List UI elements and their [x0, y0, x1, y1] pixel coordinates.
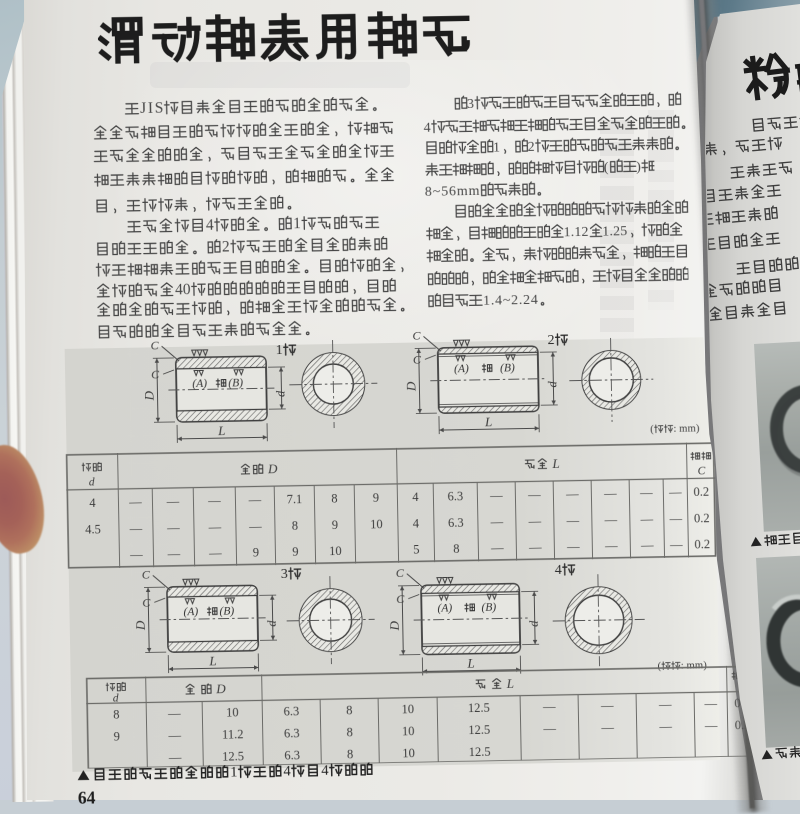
- svg-text:1.12: 1.12: [563, 224, 588, 239]
- svg-text:—: —: [489, 489, 503, 503]
- svg-text:D: D: [141, 390, 156, 401]
- svg-text:0.2: 0.2: [693, 485, 709, 499]
- svg-text:—: —: [639, 486, 653, 500]
- svg-text:9: 9: [332, 518, 339, 532]
- svg-text:d: d: [89, 477, 95, 489]
- svg-text:—: —: [565, 487, 579, 501]
- svg-text:—: —: [658, 719, 672, 733]
- svg-text:JIS: JIS: [140, 100, 164, 117]
- svg-text:L: L: [484, 414, 493, 429]
- svg-text:10: 10: [370, 517, 383, 531]
- svg-text:40: 40: [175, 281, 191, 298]
- svg-text:8: 8: [346, 703, 353, 717]
- svg-text:9: 9: [292, 545, 299, 559]
- svg-text:C: C: [412, 328, 421, 342]
- svg-text:—: —: [248, 519, 262, 533]
- svg-text:6.3: 6.3: [448, 516, 464, 530]
- svg-text:L: L: [551, 456, 560, 471]
- svg-text:—: —: [668, 512, 682, 526]
- svg-text:—: —: [167, 706, 181, 720]
- svg-text:4.5: 4.5: [85, 522, 101, 536]
- svg-text:0.2: 0.2: [694, 537, 710, 551]
- svg-text:4: 4: [424, 120, 431, 135]
- svg-text:—: —: [603, 486, 617, 500]
- svg-text:2: 2: [547, 333, 554, 348]
- svg-text:—: —: [604, 539, 618, 553]
- svg-text:(A): (A): [183, 606, 198, 618]
- svg-text:C: C: [396, 592, 405, 606]
- svg-text:1: 1: [293, 215, 301, 232]
- svg-text:(A): (A): [454, 363, 469, 375]
- svg-text:11.2: 11.2: [222, 727, 244, 741]
- svg-text:—: —: [566, 540, 580, 554]
- svg-text:8: 8: [346, 725, 353, 739]
- svg-text:10: 10: [329, 544, 342, 558]
- svg-text:6.3: 6.3: [284, 748, 300, 762]
- svg-text:1: 1: [493, 140, 500, 155]
- svg-text:L: L: [506, 676, 515, 691]
- svg-text:10: 10: [401, 702, 414, 716]
- svg-text:1.25: 1.25: [602, 223, 627, 238]
- svg-text:8: 8: [292, 519, 299, 533]
- svg-text:D: D: [267, 461, 278, 476]
- svg-text:—: —: [167, 728, 181, 742]
- svg-text:—: —: [658, 697, 672, 711]
- svg-text:4: 4: [283, 763, 291, 779]
- svg-text:—: —: [207, 494, 221, 508]
- svg-text:—: —: [248, 493, 262, 507]
- svg-text:6.3: 6.3: [447, 489, 463, 503]
- svg-text:D: D: [387, 620, 402, 631]
- svg-text:d: d: [545, 380, 559, 387]
- svg-text:—: —: [603, 513, 617, 527]
- svg-text:64: 64: [78, 787, 96, 807]
- svg-text:D: D: [215, 681, 226, 696]
- svg-text:2: 2: [527, 140, 534, 155]
- svg-text:d: d: [265, 620, 279, 627]
- svg-text:1: 1: [276, 343, 283, 358]
- svg-text:(: (: [650, 424, 654, 435]
- svg-text:—: —: [490, 515, 504, 529]
- svg-text:d: d: [527, 620, 541, 627]
- svg-text:8: 8: [331, 492, 338, 506]
- svg-text:—: —: [600, 720, 614, 734]
- svg-text:—: —: [542, 722, 556, 736]
- svg-text:—: —: [166, 521, 180, 535]
- svg-text:4: 4: [89, 496, 96, 510]
- svg-text:9: 9: [114, 730, 121, 744]
- svg-text:—: —: [704, 719, 718, 733]
- svg-text:4: 4: [206, 217, 214, 234]
- svg-text:(A): (A): [192, 378, 207, 390]
- svg-text:12.5: 12.5: [468, 701, 490, 715]
- svg-text:12.5: 12.5: [222, 749, 244, 763]
- svg-text:C: C: [142, 567, 151, 581]
- svg-text:12.5: 12.5: [468, 723, 490, 737]
- svg-text:—: —: [703, 697, 717, 711]
- svg-text:8: 8: [113, 708, 120, 722]
- svg-text:(A): (A): [437, 602, 452, 614]
- svg-text:6.3: 6.3: [283, 704, 299, 718]
- svg-text:—: —: [639, 512, 653, 526]
- svg-text:—: —: [640, 538, 654, 552]
- svg-text:d: d: [113, 692, 119, 704]
- svg-text:9: 9: [373, 491, 380, 505]
- svg-text:12.5: 12.5: [469, 745, 491, 759]
- svg-text:(B): (B): [500, 362, 515, 374]
- svg-text:10: 10: [402, 746, 415, 760]
- svg-text:(: (: [604, 160, 609, 175]
- svg-text:4: 4: [413, 516, 420, 530]
- svg-text:—: —: [208, 520, 222, 534]
- svg-text:2: 2: [222, 238, 230, 255]
- svg-text:L: L: [208, 653, 217, 668]
- svg-text:C: C: [698, 465, 706, 477]
- svg-text:3: 3: [467, 96, 474, 111]
- svg-text:C: C: [150, 338, 159, 352]
- svg-text:—: —: [527, 514, 541, 528]
- svg-text:—: —: [565, 513, 579, 527]
- svg-text:C: C: [396, 566, 405, 580]
- svg-text:(B): (B): [219, 605, 234, 617]
- svg-text:8~56mm: 8~56mm: [425, 183, 480, 199]
- svg-text:(B): (B): [228, 377, 243, 389]
- svg-text:—: —: [129, 521, 143, 535]
- svg-text:—: —: [527, 488, 541, 502]
- svg-text:1: 1: [230, 764, 238, 780]
- svg-text:10: 10: [226, 705, 239, 719]
- svg-text:C: C: [151, 367, 160, 381]
- svg-text:D: D: [403, 381, 418, 392]
- svg-text:10: 10: [402, 724, 415, 738]
- svg-text:4: 4: [321, 763, 329, 779]
- svg-text:—: —: [600, 698, 614, 712]
- svg-text:—: —: [542, 700, 556, 714]
- svg-text:—: —: [668, 485, 682, 499]
- svg-text:: mm): : mm): [673, 423, 699, 434]
- svg-text:7.1: 7.1: [287, 492, 303, 506]
- svg-text:L: L: [217, 423, 226, 438]
- svg-text:C: C: [413, 352, 422, 366]
- svg-text:0.2: 0.2: [694, 511, 710, 525]
- svg-text:6.3: 6.3: [284, 726, 300, 740]
- svg-text:—: —: [168, 750, 182, 764]
- svg-text:—: —: [166, 495, 180, 509]
- svg-text:D: D: [133, 620, 148, 631]
- svg-text:d: d: [273, 390, 287, 397]
- svg-text:—: —: [128, 495, 142, 509]
- svg-text:—: —: [669, 538, 683, 552]
- svg-text:(B): (B): [481, 602, 496, 614]
- svg-text:4: 4: [412, 490, 419, 504]
- svg-text:8: 8: [347, 747, 354, 761]
- svg-text:): ): [636, 159, 641, 174]
- svg-text:C: C: [142, 595, 151, 609]
- svg-text:L: L: [466, 655, 475, 670]
